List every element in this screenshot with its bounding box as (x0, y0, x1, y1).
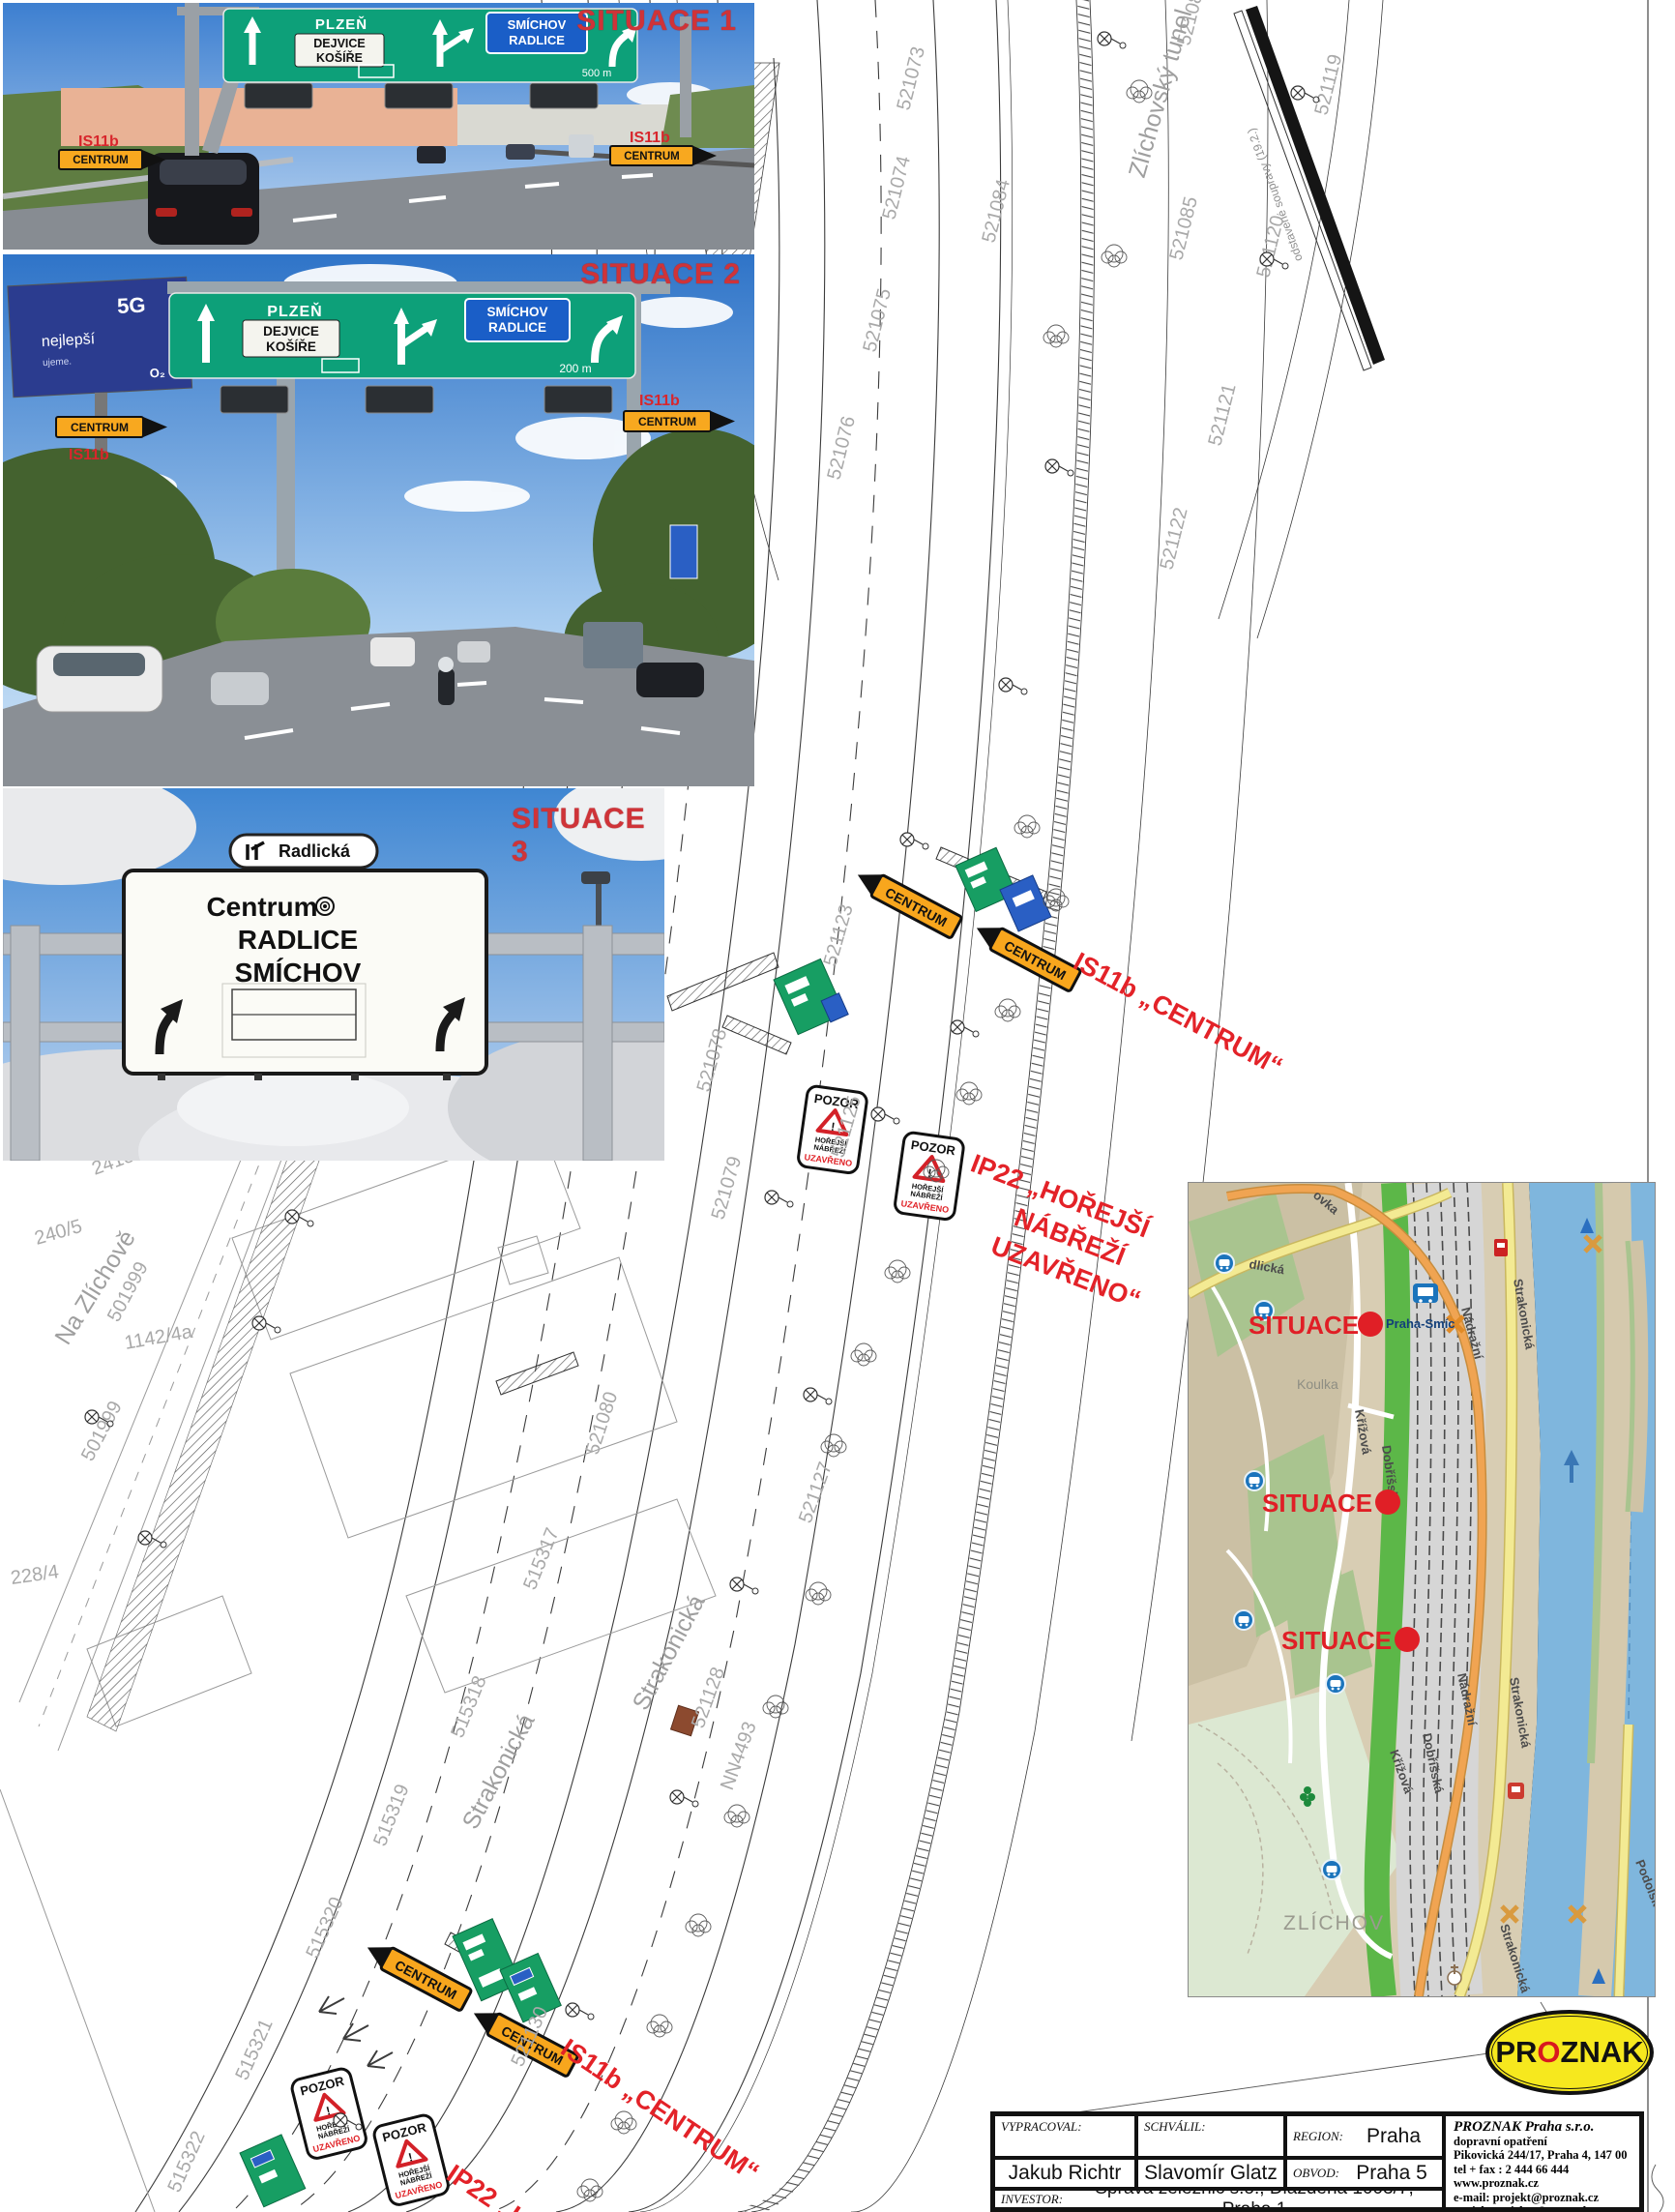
svg-text:CENTRUM: CENTRUM (624, 151, 680, 162)
svg-text:521084: 521084 (979, 177, 1014, 245)
pozor-sign-4: POZOR ! HOŘEJŠÍ NÁBŘEŽÍ UZAVŘENO (372, 2113, 450, 2207)
company-line6: projekce: richtr@proznak.cz (1454, 2204, 1631, 2209)
svg-text:1142/4a: 1142/4a (123, 1321, 194, 1354)
svg-text:515318: 515318 (447, 1673, 490, 1741)
map-inset: StrakonickáNádražníKoulkaKřížováDobříšsk… (1188, 1182, 1656, 1997)
motorcyclist (438, 657, 455, 705)
main-sign: Centrum RADLICE SMÍCHOV (124, 870, 486, 1080)
svg-text:NN4493: NN4493 (717, 1719, 761, 1792)
svg-text:KOŠÍŘE: KOŠÍŘE (316, 50, 363, 65)
svg-text:CENTRUM: CENTRUM (638, 415, 696, 428)
svg-text:Praha-Smíc: Praha-Smíc (1386, 1316, 1455, 1331)
svg-text:DEJVICE: DEJVICE (263, 324, 319, 339)
svg-text:5G: 5G (116, 292, 146, 318)
title-block: VYPRACOVAL: SCHVÁLIL: REGION: Praha PROZ… (990, 2111, 1644, 2212)
svg-text:521121: 521121 (1205, 382, 1241, 449)
region-value: Praha (1351, 2125, 1436, 2148)
vms-boxes (220, 386, 612, 413)
situace-2-label: SITUACE 2 (580, 258, 741, 291)
svg-text:RADLICE: RADLICE (238, 925, 358, 955)
svg-text:200 m: 200 m (559, 362, 591, 375)
svg-text:KOŠÍŘE: KOŠÍŘE (266, 339, 316, 354)
svg-text:515317: 515317 (519, 1525, 563, 1593)
schvalil-value: Slavomír Glatz (1144, 2162, 1278, 2185)
svg-text:nejlepší: nejlepší (42, 331, 97, 350)
vypracoval-value: Jakub Richtr (1009, 2162, 1122, 2185)
svg-text:501999: 501999 (77, 1398, 127, 1464)
logo-o: O (1537, 2035, 1560, 2070)
billboard: 5G nejlepší ujeme. O₂ (8, 277, 192, 398)
svg-text:240/5: 240/5 (32, 1216, 84, 1250)
pozor-sign-2: POZOR ! HOŘEJŠÍ NÁBŘEŽÍ UZAVŘENO (894, 1132, 964, 1221)
svg-text:521122: 521122 (1157, 506, 1192, 573)
svg-text:515322: 515322 (163, 2128, 209, 2196)
company-line3: tel + fax : 2 444 66 444 (1454, 2163, 1631, 2177)
cell-obvod: OBVOD: Praha 5 (1285, 2158, 1444, 2189)
svg-text:521128: 521128 (688, 1665, 729, 1731)
svg-text:500 m: 500 m (582, 68, 612, 79)
svg-text:Centrum: Centrum (206, 892, 317, 922)
logo-pr: PR (1495, 2035, 1537, 2070)
svg-text:521080: 521080 (582, 1389, 623, 1457)
vms-boxes (245, 83, 598, 108)
svg-text:CENTRUM: CENTRUM (73, 155, 129, 166)
obvod-value: Praha 5 (1347, 2162, 1436, 2185)
photo-situace-1: PLZEŇ DEJVICE KOŠÍŘE SMÍCHOV RADLICE 500… (3, 3, 754, 250)
svg-text:CENTRUM: CENTRUM (71, 421, 129, 434)
photo-situace-2: 5G nejlepší ujeme. O₂ PLZEŇ DEJVICE KOŠÍ… (3, 254, 754, 786)
vypracoval-label: VYPRACOVAL: (1001, 2119, 1082, 2134)
svg-text:SMÍCHOV: SMÍCHOV (235, 958, 362, 988)
svg-text:RADLICE: RADLICE (488, 320, 546, 335)
situace-1-label: SITUACE 1 (576, 5, 737, 38)
proznak-logo: PROZNAK (1485, 2010, 1654, 2095)
exit-sign: Radlická (230, 835, 377, 868)
company-line4: www.proznak.cz (1454, 2176, 1631, 2191)
svg-text:SMÍCHOV: SMÍCHOV (486, 305, 547, 319)
svg-text:Koulka: Koulka (1297, 1376, 1338, 1392)
hill-right (661, 85, 754, 148)
svg-text:PLZEŇ: PLZEŇ (267, 302, 322, 320)
svg-text:IS11b: IS11b (69, 447, 109, 463)
svg-text:521120: 521120 (1253, 214, 1289, 280)
svg-text:521078: 521078 (693, 1026, 732, 1094)
svg-text:O₂: O₂ (149, 366, 165, 381)
company-name: PROZNAK Praha s.r.o. (1454, 2120, 1631, 2135)
svg-text:515319: 515319 (369, 1782, 413, 1849)
annotation-ip22-top: IP22 „HOŘEJŠÍ NÁBŘEŽÍ UZAVŘENO“ (942, 1148, 1170, 1314)
schvalil-label: SCHVÁLIL: (1144, 2119, 1206, 2134)
svg-text:521127: 521127 (795, 1460, 837, 1526)
svg-text:ZLÍCHOV: ZLÍCHOV (1283, 1912, 1385, 1934)
investor-label: INVESTOR: (1001, 2192, 1063, 2207)
svg-text:521085: 521085 (1166, 194, 1202, 262)
svg-text:521073: 521073 (894, 44, 929, 112)
company-info: PROZNAK Praha s.r.o. dopravní opatření P… (1444, 2114, 1641, 2209)
annotation-ip22-bottom: IP22 „HOŘEJŠÍ (442, 2158, 616, 2212)
situace-3-label: SITUACE 3 (512, 803, 664, 869)
region-label: REGION: (1293, 2129, 1343, 2144)
svg-text:521076: 521076 (824, 414, 860, 482)
svg-text:ujeme.: ujeme. (43, 357, 73, 369)
photo-situace-3: Radlická Centrum RADLICE SMÍCHOV (3, 788, 664, 1161)
svg-text:515320: 515320 (302, 1894, 347, 1961)
svg-text:PLZEŇ: PLZEŇ (315, 15, 367, 33)
svg-text:SITUACE 2: SITUACE 2 (1262, 1489, 1394, 1518)
cell-investor: INVESTOR: Správa železnic s.o., Dlážděná… (993, 2189, 1444, 2209)
svg-text:521079: 521079 (708, 1154, 747, 1222)
pozor-sign-3: POZOR ! HOŘEJŠÍ NÁBŘEŽÍ UZAVŘENO (290, 2067, 367, 2161)
gantry-sign: PLZEŇ DEJVICE KOŠÍŘE SMÍCHOV RADLICE 500… (223, 9, 637, 82)
svg-text:228/4: 228/4 (10, 1561, 61, 1589)
investor-value: Správa železnic s.o., Dlážděná 1003/7, P… (1073, 2189, 1436, 2209)
svg-text:SITUACE 1: SITUACE 1 (1281, 1626, 1413, 1655)
svg-text:IS11b: IS11b (78, 133, 119, 150)
company-line5: e-mail: projekt@proznak.cz (1454, 2191, 1631, 2205)
roadside-banner (670, 525, 697, 578)
svg-text:RADLICE: RADLICE (509, 33, 565, 47)
company-line2: Pikovická 244/17, Praha 4, 147 00 (1454, 2148, 1631, 2163)
svg-text:Radlická: Radlická (279, 841, 351, 861)
company-line1: dopravní opatření (1454, 2135, 1631, 2149)
drawing-sheet: odstavené soupravy (19.2.) (0, 0, 1675, 2212)
centrum-plan-sign-1: CENTRUM (852, 864, 963, 938)
cell-schvalil-value: Slavomír Glatz (1136, 2158, 1285, 2189)
logo-znak: ZNAK (1561, 2035, 1644, 2070)
svg-text:IS11b: IS11b (639, 393, 680, 409)
cell-vypracoval-label: VYPRACOVAL: (993, 2114, 1136, 2158)
annotation-is11b-bottom: IS11b „CENTRUM“ (556, 2033, 765, 2187)
svg-text:DEJVICE: DEJVICE (313, 37, 366, 50)
svg-text:521074: 521074 (879, 154, 915, 221)
cell-vypracoval-value: Jakub Richtr (993, 2158, 1136, 2189)
cell-region: REGION: Praha (1285, 2114, 1444, 2158)
obvod-label: OBVOD: (1293, 2166, 1339, 2181)
annotation-is11b-top: IS11b „CENTRUM“ (1069, 947, 1287, 1081)
svg-text:521123: 521123 (820, 902, 858, 969)
svg-text:SMÍCHOV: SMÍCHOV (508, 17, 567, 32)
gantry-sign: PLZEŇ DEJVICE KOŠÍŘE SMÍCHOV RADLICE 200… (169, 293, 635, 378)
railway-band (738, 0, 1095, 2212)
cell-schvalil-label: SCHVÁLIL: (1136, 2114, 1285, 2158)
svg-text:515321: 515321 (231, 2016, 277, 2083)
svg-text:521075: 521075 (860, 286, 896, 354)
lane-arrows (319, 1996, 393, 2068)
svg-text:IS11b: IS11b (630, 130, 670, 146)
